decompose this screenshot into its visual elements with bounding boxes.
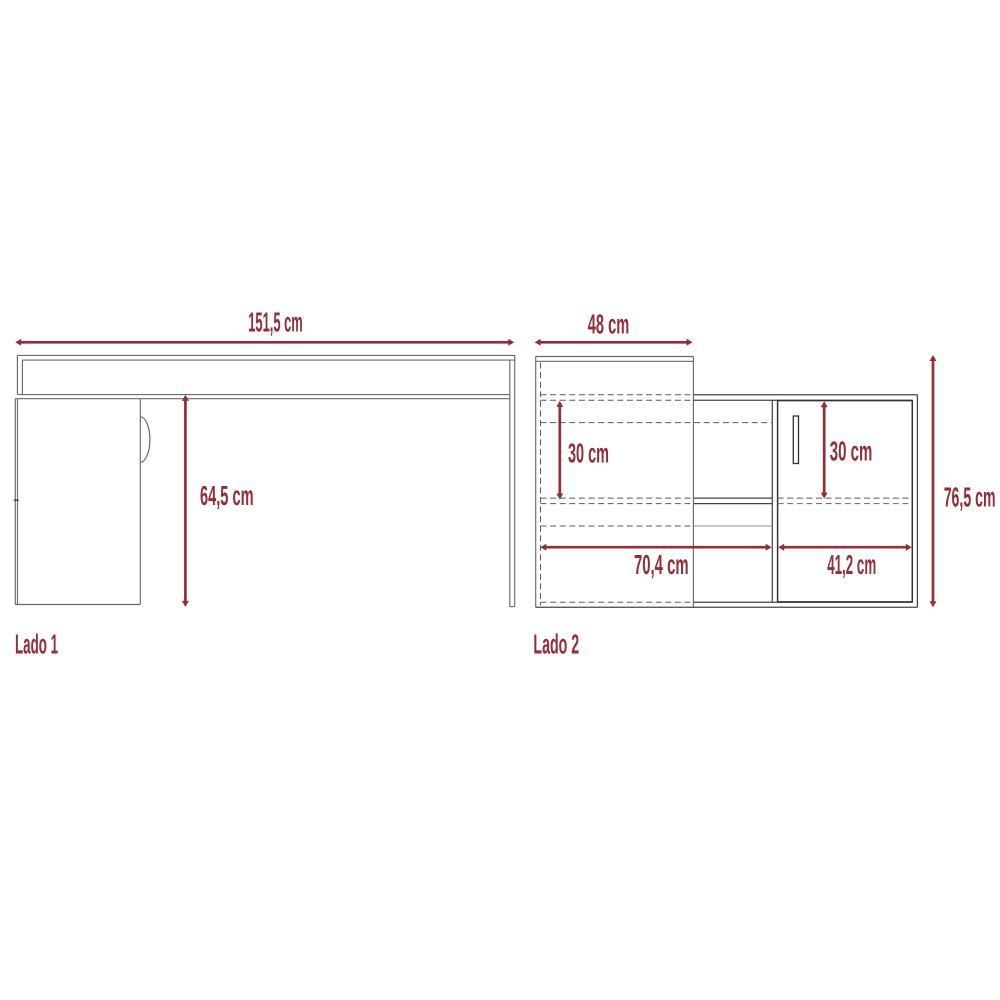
svg-text:76,5 cm: 76,5 cm xyxy=(944,481,996,512)
svg-text:30 cm: 30 cm xyxy=(830,435,873,466)
svg-text:41,2 cm: 41,2 cm xyxy=(827,549,876,580)
svg-text:64,5 cm: 64,5 cm xyxy=(200,480,254,511)
svg-text:70,4 cm: 70,4 cm xyxy=(634,549,689,580)
svg-text:Lado 1: Lado 1 xyxy=(15,628,58,659)
svg-text:151,5 cm: 151,5 cm xyxy=(248,307,303,338)
svg-text:Lado 2: Lado 2 xyxy=(533,629,579,660)
svg-text:30 cm: 30 cm xyxy=(568,437,609,468)
svg-text:48 cm: 48 cm xyxy=(588,308,629,339)
